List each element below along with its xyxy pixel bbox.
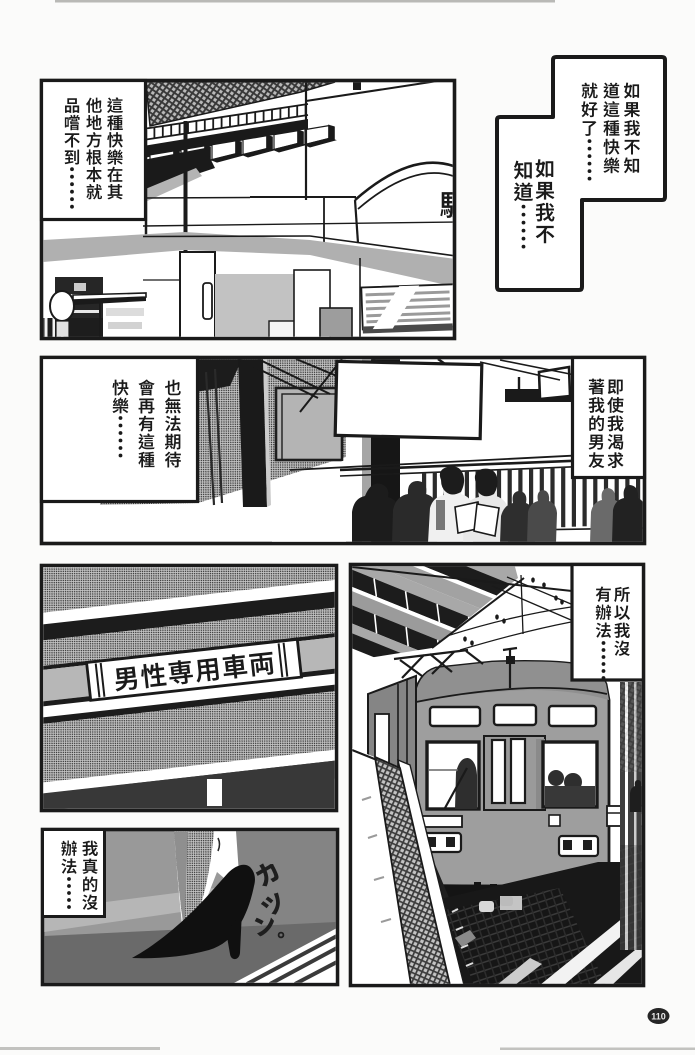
svg-text:110: 110 bbox=[651, 1012, 666, 1022]
